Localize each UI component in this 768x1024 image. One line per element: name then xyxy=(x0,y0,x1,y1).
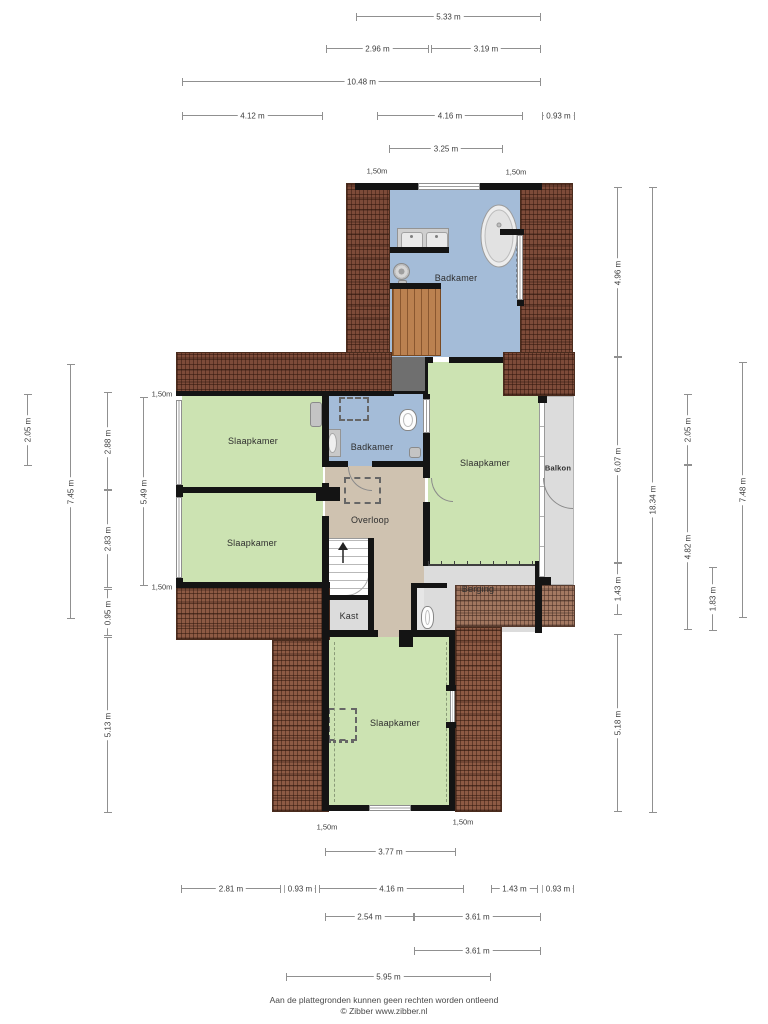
footer-disclaimer: Aan de plattegronden kunnen geen rechten… xyxy=(0,995,768,1017)
floorplan-page: Badkamer Slaapkamer Badkamer Slaapkamer … xyxy=(0,0,768,1024)
wall xyxy=(446,685,456,691)
wall xyxy=(517,300,524,306)
dimension-value: 6.07 m xyxy=(614,445,623,475)
dimension-value: 0.93 m xyxy=(543,885,573,894)
dimension-value: 5.49 m xyxy=(140,476,149,506)
stairs-up-arrow xyxy=(336,542,350,564)
dimension-value: 4.12 m xyxy=(237,112,267,121)
dimension-value: 1.43 m xyxy=(614,573,623,603)
wall xyxy=(411,805,455,811)
height-marker-label: 1,50m xyxy=(152,390,173,399)
wall xyxy=(411,583,447,588)
room-label-balkon: Balkon xyxy=(545,464,571,473)
dimension-vertical: 2.05 m xyxy=(27,395,28,465)
room-label-badkamer-mid: Badkamer xyxy=(351,442,394,452)
dimension-horizontal: 0.93 m xyxy=(543,888,573,889)
dormer-dashed-outline xyxy=(328,708,357,741)
wall xyxy=(316,487,340,501)
dimension-vertical: 7.45 m xyxy=(70,365,71,618)
dimension-value: 3.77 m xyxy=(375,848,405,857)
dimension-horizontal: 10.48 m xyxy=(183,81,540,82)
dimension-vertical: 6.07 m xyxy=(617,357,618,563)
window xyxy=(450,690,455,723)
roof-hatch xyxy=(272,640,329,812)
toilet xyxy=(421,606,434,629)
glass-wall xyxy=(539,402,545,577)
dimension-value: 3.61 m xyxy=(462,947,492,956)
window xyxy=(418,183,480,190)
height-marker-label: 1,50m xyxy=(317,823,338,832)
wall xyxy=(446,722,456,728)
room-label-slaapkamer-e: Slaapkamer xyxy=(460,458,510,468)
dimension-horizontal: 4.16 m xyxy=(378,115,522,116)
dimension-horizontal: 5.95 m xyxy=(287,976,490,977)
window xyxy=(369,805,411,811)
wall xyxy=(538,577,551,585)
dimension-value: 3.61 m xyxy=(462,913,492,922)
dimension-value: 18.34 m xyxy=(649,483,658,518)
shower-head-icon xyxy=(393,263,410,280)
dimension-vertical: 2.88 m xyxy=(107,393,108,490)
dimension-vertical: 4.82 m xyxy=(687,465,688,629)
dimension-horizontal: 0.93 m xyxy=(543,115,574,116)
dimension-horizontal: 3.19 m xyxy=(432,48,540,49)
wall xyxy=(449,637,455,690)
room-label-slaapkamer-sw: Slaapkamer xyxy=(227,538,277,548)
wall xyxy=(182,487,323,493)
footer-line-1: Aan de plattegronden kunnen geen rechten… xyxy=(0,995,768,1006)
wall xyxy=(480,183,542,190)
dimension-horizontal: 5.33 m xyxy=(357,16,540,17)
dimension-vertical: 5.18 m xyxy=(617,635,618,811)
dimension-value: 2.05 m xyxy=(24,415,33,445)
shaft-void xyxy=(392,357,430,396)
wall xyxy=(423,502,430,566)
roof-hatch xyxy=(503,352,575,396)
footer-line-2: © Zibber www.zibber.nl xyxy=(0,1006,768,1017)
dimension-value: 2.96 m xyxy=(362,45,392,54)
dimension-vertical: 0.95 m xyxy=(107,590,108,635)
height-marker-label: 1,50m xyxy=(152,583,173,592)
shower-area-dashed xyxy=(339,397,369,421)
wall xyxy=(390,247,449,253)
wall xyxy=(390,283,441,289)
dimension-vertical: 18.34 m xyxy=(652,188,653,812)
dimension-value: 5.18 m xyxy=(614,708,623,738)
dimension-value: 7.45 m xyxy=(67,476,76,506)
wall xyxy=(449,723,455,810)
wall xyxy=(355,183,418,190)
glass-door xyxy=(517,235,523,300)
dimension-value: 2.54 m xyxy=(354,913,384,922)
dimension-value: 3.25 m xyxy=(431,145,461,154)
dimension-value: 0.93 m xyxy=(285,885,315,894)
dimension-value: 10.48 m xyxy=(344,78,379,87)
wall xyxy=(368,538,374,633)
dimension-vertical: 1.43 m xyxy=(617,563,618,614)
roof-hatch xyxy=(176,352,392,396)
wall xyxy=(423,433,430,465)
wall xyxy=(176,391,394,396)
room-label-overloop: Overloop xyxy=(351,515,389,525)
dimension-vertical: 5.49 m xyxy=(143,398,144,585)
radiator xyxy=(310,402,322,427)
window xyxy=(176,497,182,578)
dimension-value: 1.83 m xyxy=(709,584,718,614)
dimension-vertical: 2.83 m xyxy=(107,490,108,587)
radiator xyxy=(409,447,421,458)
room-label-slaapkamer-s: Slaapkamer xyxy=(370,718,420,728)
room-slaapkamer-e xyxy=(428,362,503,396)
roof-hatch xyxy=(176,587,330,640)
dimension-value: 0.93 m xyxy=(543,112,573,121)
dimension-vertical: 1.83 m xyxy=(712,568,713,630)
dimension-value: 4.96 m xyxy=(614,257,623,287)
window xyxy=(176,400,182,485)
dimension-value: 2.83 m xyxy=(104,523,113,553)
wall xyxy=(423,465,430,478)
height-marker-label: 1,50m xyxy=(453,818,474,827)
wall xyxy=(322,391,329,467)
dimension-value: 4.16 m xyxy=(376,885,406,894)
wall xyxy=(449,357,503,363)
wall xyxy=(322,516,329,637)
wall xyxy=(372,461,430,467)
roof-hatch xyxy=(520,183,573,356)
dimension-horizontal: 4.12 m xyxy=(183,115,322,116)
wall xyxy=(538,396,547,403)
dimension-value: 5.33 m xyxy=(433,13,463,22)
dimension-value: 5.95 m xyxy=(373,973,403,982)
dimension-horizontal: 2.96 m xyxy=(327,48,428,49)
dimension-value: 2.05 m xyxy=(684,415,693,445)
dimension-value: 3.19 m xyxy=(471,45,501,54)
roof-hatch xyxy=(346,183,390,356)
height-marker-label: 1,50m xyxy=(367,167,388,176)
dimension-value: 4.16 m xyxy=(435,112,465,121)
dimension-vertical: 4.96 m xyxy=(617,188,618,357)
dimension-horizontal: 0.93 m xyxy=(285,888,315,889)
door-panel xyxy=(423,399,430,433)
dimension-value: 5.13 m xyxy=(104,710,113,740)
wall xyxy=(413,630,455,637)
wall xyxy=(176,582,330,588)
wall xyxy=(322,637,329,810)
dimension-horizontal: 2.81 m xyxy=(182,888,280,889)
dimension-value: 2.88 m xyxy=(104,426,113,456)
dimension-vertical: 7.48 m xyxy=(742,363,743,617)
room-label-slaapkamer-nw: Slaapkamer xyxy=(228,436,278,446)
bathtub xyxy=(479,203,519,269)
room-label-berging: Berging xyxy=(462,584,494,594)
room-label-badkamer-top: Badkamer xyxy=(435,273,478,283)
wall xyxy=(327,595,372,600)
dimension-horizontal: 3.61 m xyxy=(415,916,540,917)
dimension-horizontal: 3.25 m xyxy=(390,148,502,149)
dimension-horizontal: 2.54 m xyxy=(326,916,413,917)
room-label-kast: Kast xyxy=(340,611,359,621)
dimension-vertical: 2.05 m xyxy=(687,395,688,465)
dotted-marking xyxy=(328,740,354,743)
dimension-value: 7.48 m xyxy=(739,475,748,505)
dimension-value: 0.95 m xyxy=(104,597,113,627)
dimension-horizontal: 1.43 m xyxy=(492,888,537,889)
wall xyxy=(322,461,348,467)
toilet xyxy=(399,409,417,431)
window-wall xyxy=(428,561,541,566)
dimension-value: 2.81 m xyxy=(216,885,246,894)
wall xyxy=(428,357,433,363)
dimension-horizontal: 3.77 m xyxy=(326,851,455,852)
height-marker-label: 1,50m xyxy=(506,168,527,177)
dimension-horizontal: 4.16 m xyxy=(320,888,463,889)
dimension-horizontal: 3.61 m xyxy=(415,950,540,951)
dimension-value: 4.82 m xyxy=(684,532,693,562)
wall xyxy=(411,583,417,633)
dimension-vertical: 5.13 m xyxy=(107,638,108,812)
wall xyxy=(322,805,369,811)
wood-floor xyxy=(392,288,441,356)
roof-hatch xyxy=(455,627,502,812)
dimension-value: 1.43 m xyxy=(499,885,529,894)
